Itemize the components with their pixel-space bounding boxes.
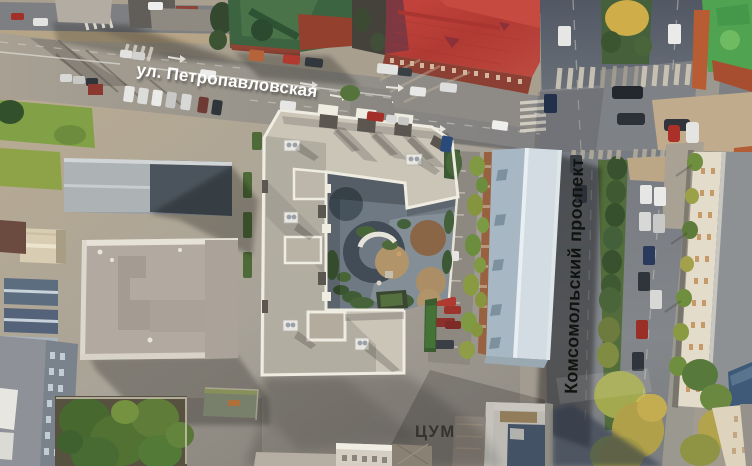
svg-text:ЦУМ: ЦУМ: [415, 423, 456, 441]
